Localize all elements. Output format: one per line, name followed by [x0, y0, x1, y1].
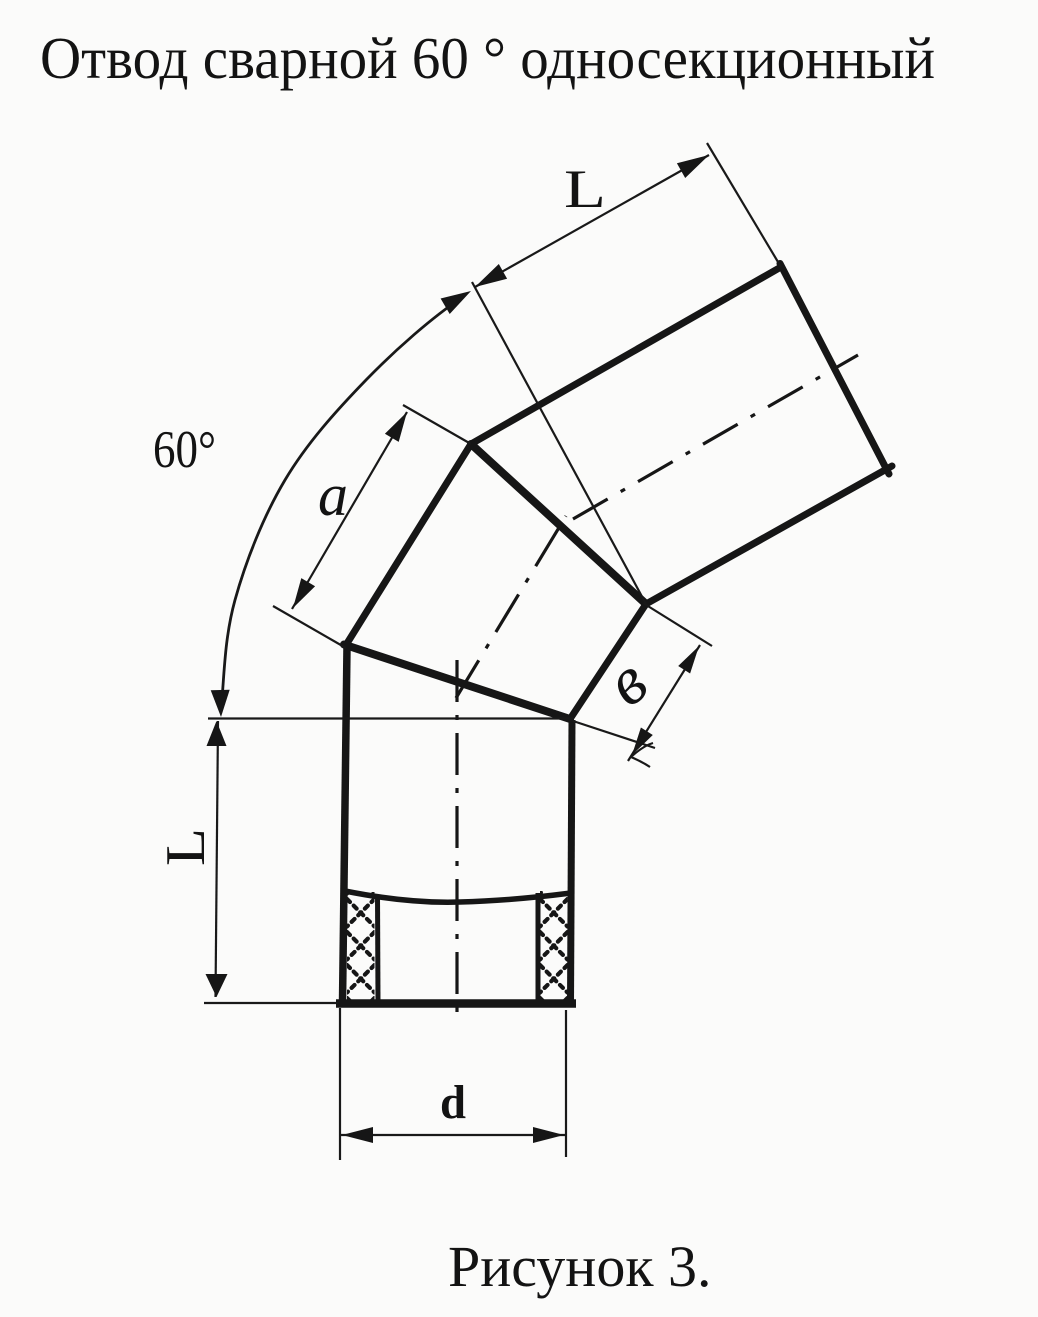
svg-text:d: d [440, 1076, 466, 1129]
svg-text:L: L [564, 159, 606, 219]
svg-text:в: в [591, 642, 661, 720]
svg-text:L: L [155, 828, 217, 866]
svg-text:Рисунок 3.: Рисунок 3. [448, 1234, 712, 1299]
svg-text:Отвод сварной 60 ° односекцион: Отвод сварной 60 ° односекционный [40, 25, 935, 91]
svg-text:a: a [318, 462, 348, 528]
svg-text:60°: 60° [153, 421, 216, 479]
